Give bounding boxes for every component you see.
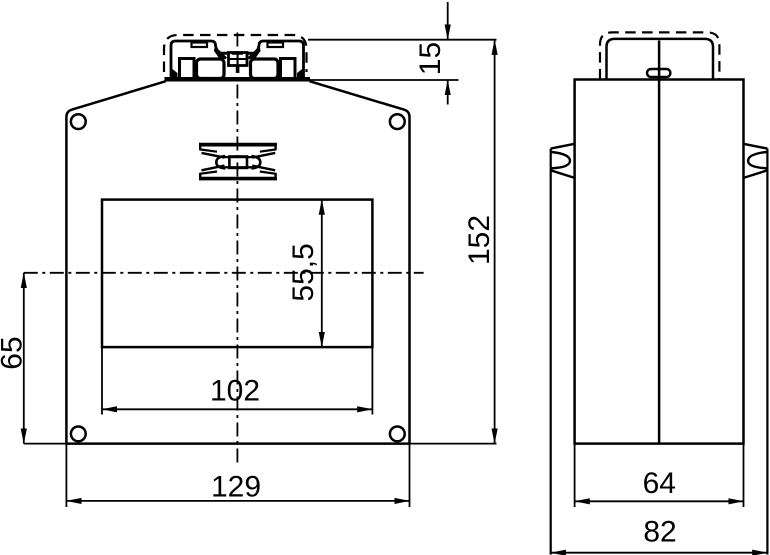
svg-text:65: 65 [0, 336, 29, 369]
svg-text:129: 129 [211, 471, 261, 504]
svg-text:152: 152 [463, 215, 496, 265]
svg-text:15: 15 [414, 42, 447, 75]
svg-text:64: 64 [643, 467, 676, 500]
svg-text:102: 102 [210, 374, 260, 407]
svg-text:55,5: 55,5 [287, 243, 320, 301]
svg-text:82: 82 [643, 516, 676, 549]
